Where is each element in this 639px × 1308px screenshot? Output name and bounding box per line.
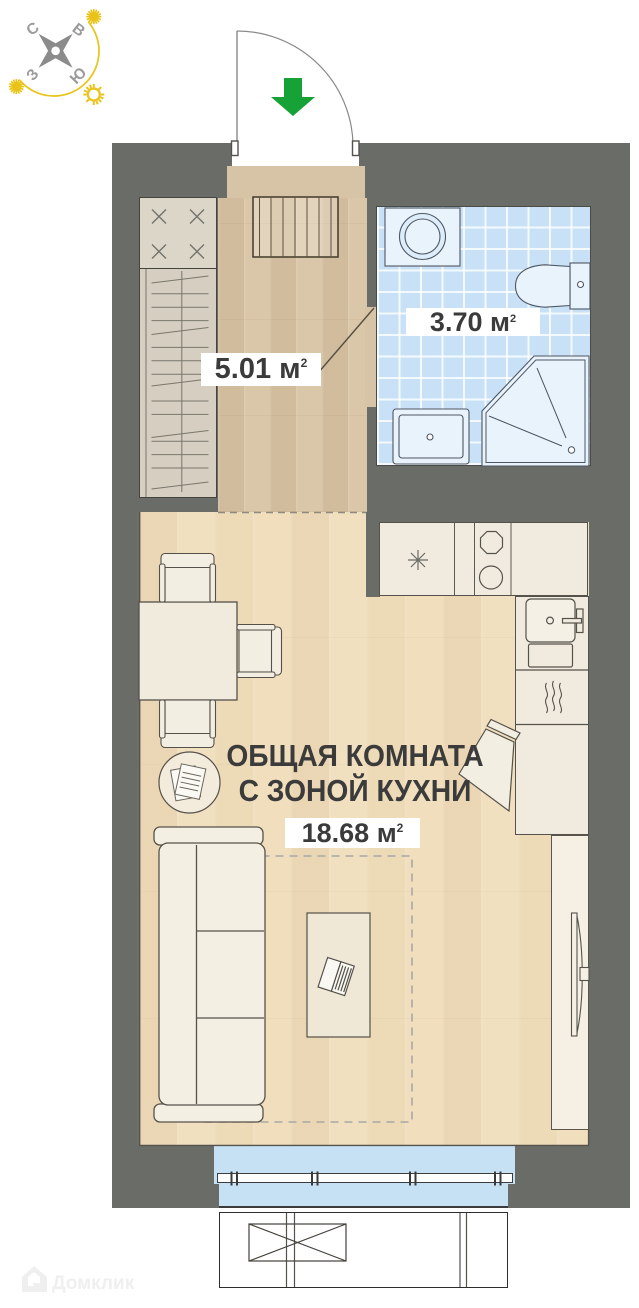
svg-text:З: З xyxy=(23,66,42,84)
svg-text:Ю: Ю xyxy=(67,64,90,87)
svg-text:С: С xyxy=(23,19,42,39)
svg-text:В: В xyxy=(69,20,88,40)
svg-text:Домклик: Домклик xyxy=(52,1273,135,1294)
